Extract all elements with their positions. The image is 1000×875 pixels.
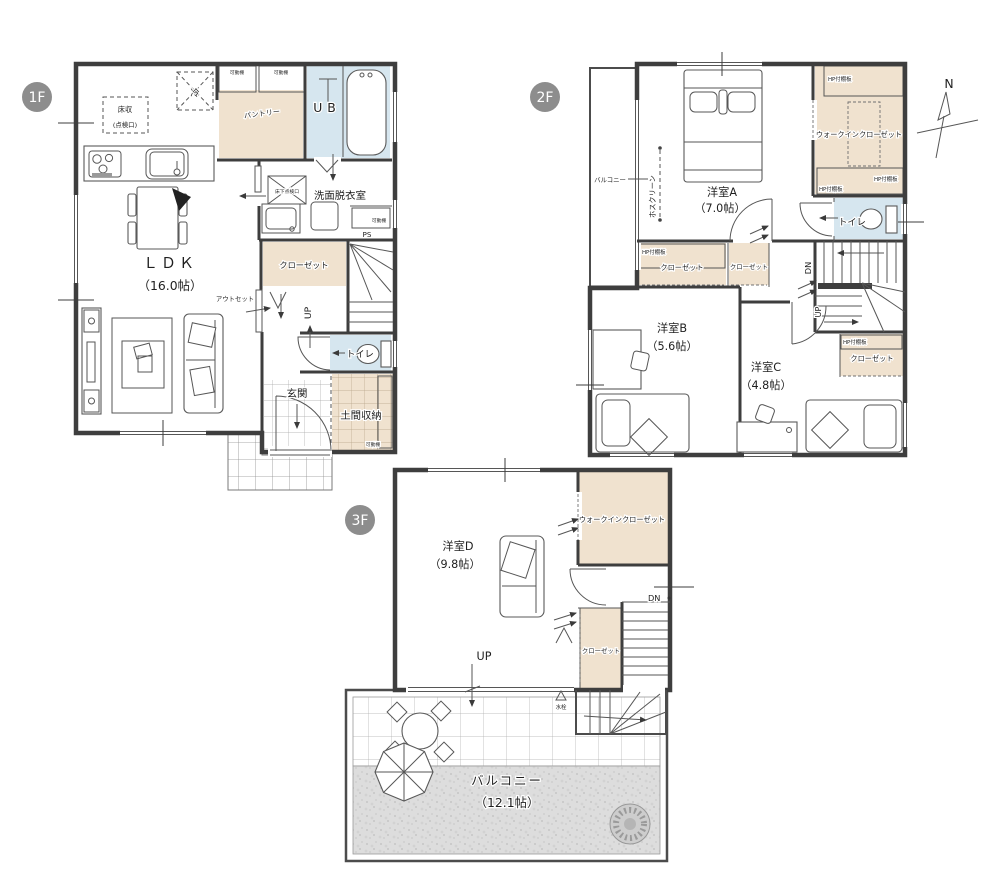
outset-door-panel: [256, 290, 262, 332]
label-kadodana: 可動棚: [372, 217, 387, 224]
north-label: N: [944, 76, 953, 91]
floor1-badge: 1F: [22, 82, 52, 112]
label-unit-bath: UB: [313, 100, 341, 115]
floor3-badge: 3F: [345, 505, 375, 535]
label-pipe-space: PS: [363, 230, 372, 239]
pantry-floor: [219, 90, 303, 158]
hoscreen-line: [658, 146, 662, 222]
floor2-badge-label: 2F: [537, 90, 554, 106]
label-entrance: 玄関: [287, 387, 308, 400]
label-up3f: UP: [477, 650, 492, 663]
label-floor-storage-sub: (点検口): [113, 120, 137, 129]
label-kadodana: 可動棚: [230, 69, 245, 76]
label-outset: アウトセット: [216, 295, 254, 303]
sofa-d: [500, 536, 544, 617]
label-dn2f: DN: [803, 262, 813, 274]
label-dn3f: DN: [648, 593, 660, 603]
label-faucet: 水栓: [556, 703, 567, 711]
label-up2f: UP: [813, 306, 823, 317]
desk-c: [737, 404, 797, 452]
sofa: [184, 314, 223, 413]
room-d-door: [570, 569, 606, 605]
label-ldk: ＬＤＫ: [143, 254, 197, 272]
label-kadodana: 可動棚: [274, 69, 289, 76]
label-wic3f: ウォークインクローゼット: [579, 515, 665, 524]
floor3-plan: 3F 洋室D （9.8帖） ウォークインクローゼット DN クローゼット UP …: [345, 458, 694, 861]
label-hoscreen: ホスクリーン: [648, 175, 657, 218]
shelf-hatch: [219, 66, 256, 92]
plant: [610, 804, 650, 844]
label-up: UP: [303, 306, 314, 319]
bed-a: [684, 70, 762, 182]
floor1-plan: 1F 床収 (点検口) 冷 可動棚 可動棚 パントリー UB 洗面脱衣室 床下点…: [22, 64, 399, 490]
bed-b: [596, 394, 689, 455]
label-toilet2f: トイレ: [838, 217, 866, 228]
label-doma-storage: 土間収納: [340, 409, 382, 422]
kitchen-counter: [84, 146, 214, 181]
label-room-a: 洋室A: [707, 185, 737, 199]
compass-needle-icon: [938, 92, 950, 120]
label-toilet: トイレ: [346, 349, 374, 360]
label-room-b: 洋室B: [657, 321, 687, 335]
label-hp-shelf: HP付棚板: [642, 248, 666, 256]
label-closet2f-2: クローゼット: [730, 262, 768, 271]
label-balcony2f: バルコニー: [594, 176, 626, 184]
label-fridge: 冷: [190, 87, 199, 99]
label-balcony3f-size: （12.1帖）: [475, 795, 540, 810]
label-closet3f: クローゼット: [582, 646, 620, 655]
label-hp-shelf: HP付棚板: [828, 75, 852, 83]
label-room-d: 洋室D: [443, 539, 474, 553]
toilet2f-door: [800, 203, 832, 236]
label-underfloor-hatch: 床下点検口: [275, 188, 299, 195]
parasol: [375, 743, 433, 801]
label-hp-shelf: HP付棚板: [819, 185, 843, 193]
label-balcony3f: バルコニー: [471, 773, 543, 788]
floor1-badge-label: 1F: [29, 90, 46, 106]
label-ldk-size: （16.0帖）: [138, 278, 203, 293]
closet1f-fold-door: [270, 292, 286, 308]
washroom-door-panel: [255, 166, 261, 192]
floor2-badge: 2F: [530, 82, 560, 112]
label-room-d-size: （9.8帖）: [429, 558, 480, 571]
label-hp-shelf: HP付棚板: [843, 338, 867, 346]
label-closet2f-3: クローゼット: [850, 354, 893, 363]
label-washroom: 洗面脱衣室: [314, 189, 366, 202]
floor3-badge-label: 3F: [352, 513, 369, 529]
slide-arrows: [554, 519, 578, 643]
desk-b: [593, 330, 650, 389]
tv-board: [82, 308, 101, 414]
label-room-b-size: （5.6帖）: [646, 340, 697, 353]
floor2-plan: 2F バルコニー ホスクリーン 洋室A （7.0帖） HP付棚板 ウォークインク…: [530, 52, 924, 459]
washroom-fixtures: [262, 176, 338, 233]
floorplan-page: 1F 床収 (点検口) 冷 可動棚 可動棚 パントリー UB 洗面脱衣室 床下点…: [0, 0, 1000, 875]
shelf-hatch: [259, 66, 304, 92]
toilet1f-door: [298, 337, 330, 370]
label-kadodana: 可動棚: [366, 441, 381, 448]
label-wic2f: ウォークインクローゼット: [816, 130, 902, 139]
shelf-hatch: [352, 208, 390, 228]
rug-table: [112, 318, 172, 413]
label-room-c: 洋室C: [751, 360, 781, 374]
compass-lines: [917, 116, 978, 158]
label-closet: クローゼット: [279, 260, 328, 270]
label-room-a-size: （7.0帖）: [694, 202, 745, 215]
north-compass: N: [917, 76, 978, 158]
floorplan-drawing: 1F 床収 (点検口) 冷 可動棚 可動棚 パントリー UB 洗面脱衣室 床下点…: [0, 0, 1000, 875]
dining-set: [128, 187, 191, 249]
label-hp-shelf: HP付棚板: [874, 175, 898, 183]
label-floor-storage: 床収: [118, 105, 132, 114]
label-closet2f-1: クローゼット: [660, 263, 703, 272]
dn-dot: [668, 597, 671, 600]
bed-c: [806, 400, 902, 452]
stairs-2f: [815, 241, 905, 332]
label-room-c-size: （4.8帖）: [740, 379, 791, 392]
